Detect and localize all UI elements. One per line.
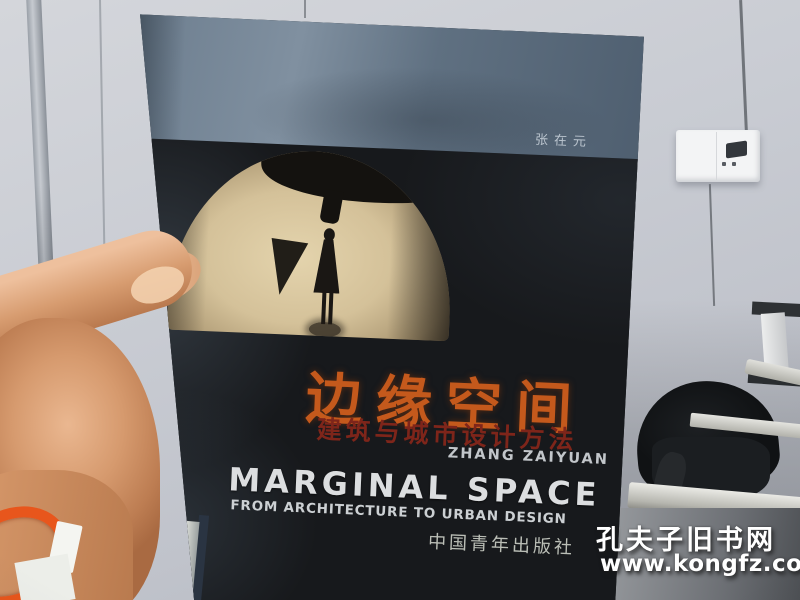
outlet-socket-slot (726, 141, 747, 159)
office-photo-scene: 张在元 边缘空间 建筑与城市设计方法 ZHANG ZAIYUAN MARGINA… (0, 0, 800, 600)
person-coat (313, 239, 341, 294)
watermark-site-url: www.kongfz.com (600, 551, 800, 577)
person-silhouette (308, 228, 347, 341)
outlet-pin-hole (722, 162, 726, 166)
book-page-edges (153, 519, 199, 600)
arch-right-shade (387, 155, 457, 341)
person-leg (328, 291, 333, 324)
outlet-cable-lower (709, 184, 715, 306)
paper-slip (14, 554, 75, 600)
arch-triangle-shadow (264, 238, 309, 298)
wall-outlet (676, 130, 760, 182)
archway-photo (167, 146, 456, 342)
book-cover: 张在元 边缘空间 建筑与城市设计方法 ZHANG ZAIYUAN MARGINA… (138, 12, 648, 600)
person-ground-shadow (309, 321, 342, 337)
outlet-pin-hole (732, 162, 736, 166)
outlet-plate-divider (716, 132, 717, 180)
person-leg (321, 291, 326, 324)
wall-cable-top (304, 0, 306, 18)
wall-panel-seam-line (99, 0, 105, 256)
outlet-cable-upper (739, 0, 748, 132)
book-cover-surface: 张在元 边缘空间 建筑与城市设计方法 ZHANG ZAIYUAN MARGINA… (110, 12, 697, 600)
author-name-chinese: 张在元 (535, 129, 593, 150)
